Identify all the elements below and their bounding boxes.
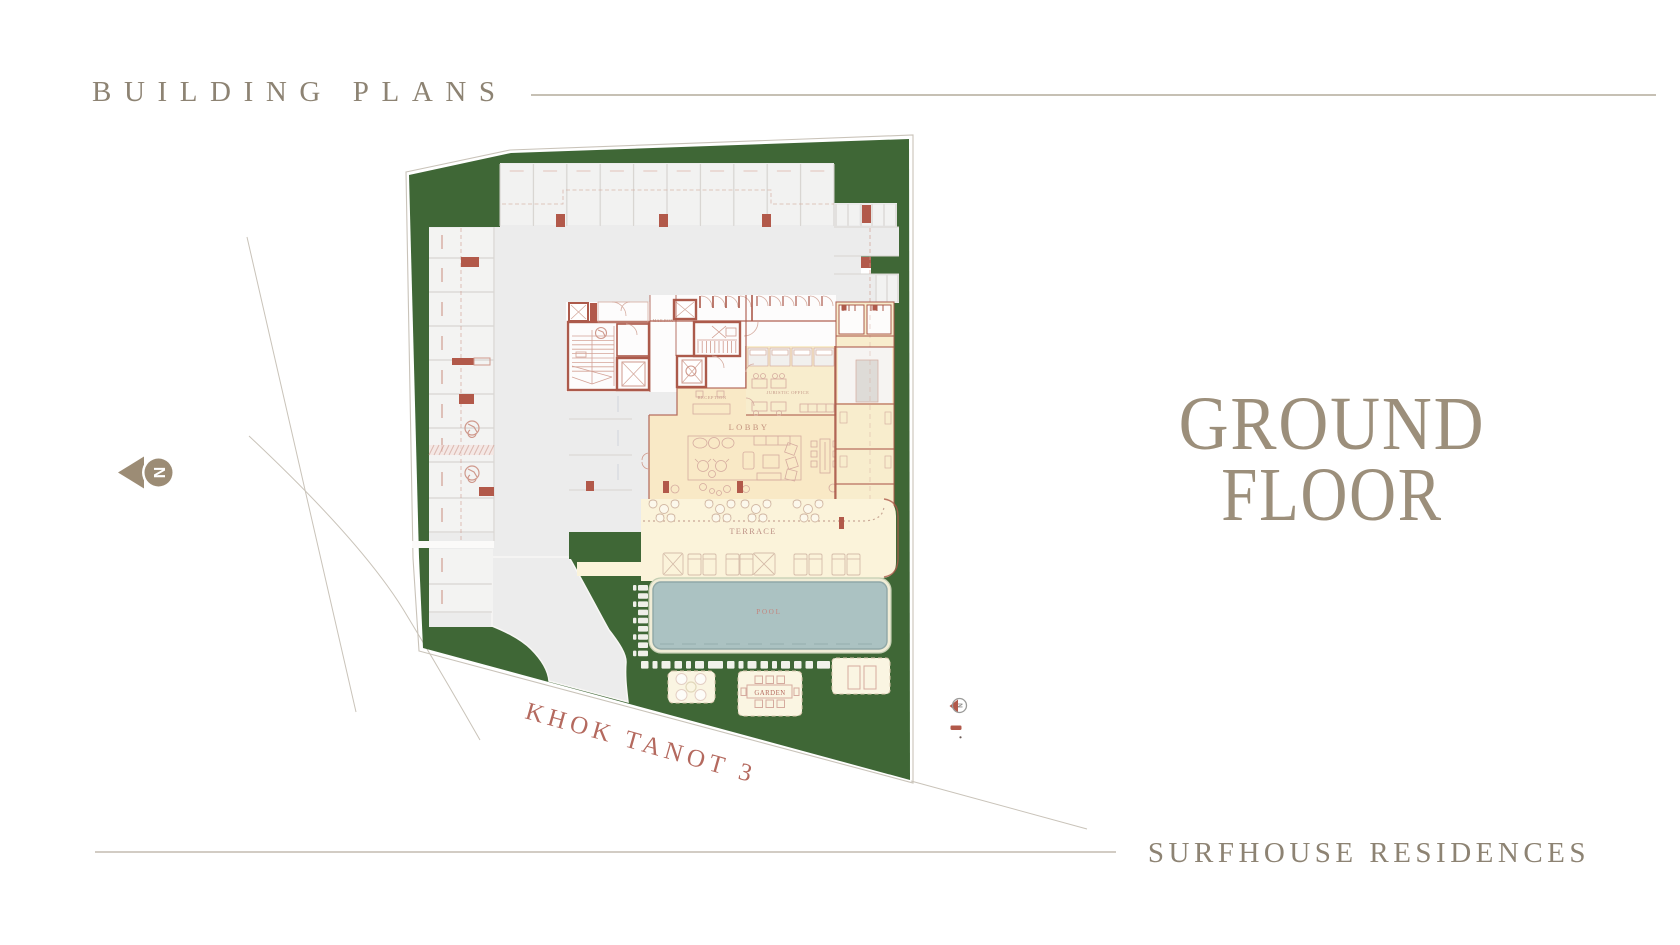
svg-text:BUILDING PLANS: BUILDING PLANS bbox=[92, 76, 508, 108]
svg-text:SURFHOUSE RESIDENCES: SURFHOUSE RESIDENCES bbox=[1148, 837, 1590, 869]
svg-text:JURISTIC OFFICE: JURISTIC OFFICE bbox=[767, 390, 810, 395]
svg-text:N: N bbox=[150, 467, 167, 479]
svg-text:FLOOR: FLOOR bbox=[1221, 453, 1443, 537]
svg-text:RECEPTION: RECEPTION bbox=[698, 395, 727, 400]
svg-text:GARDEN: GARDEN bbox=[754, 690, 785, 697]
svg-text:POOL: POOL bbox=[756, 608, 781, 616]
svg-text:TERRACE: TERRACE bbox=[729, 527, 776, 536]
svg-text:N: N bbox=[956, 703, 963, 708]
svg-text:LOBBY: LOBBY bbox=[729, 422, 770, 432]
